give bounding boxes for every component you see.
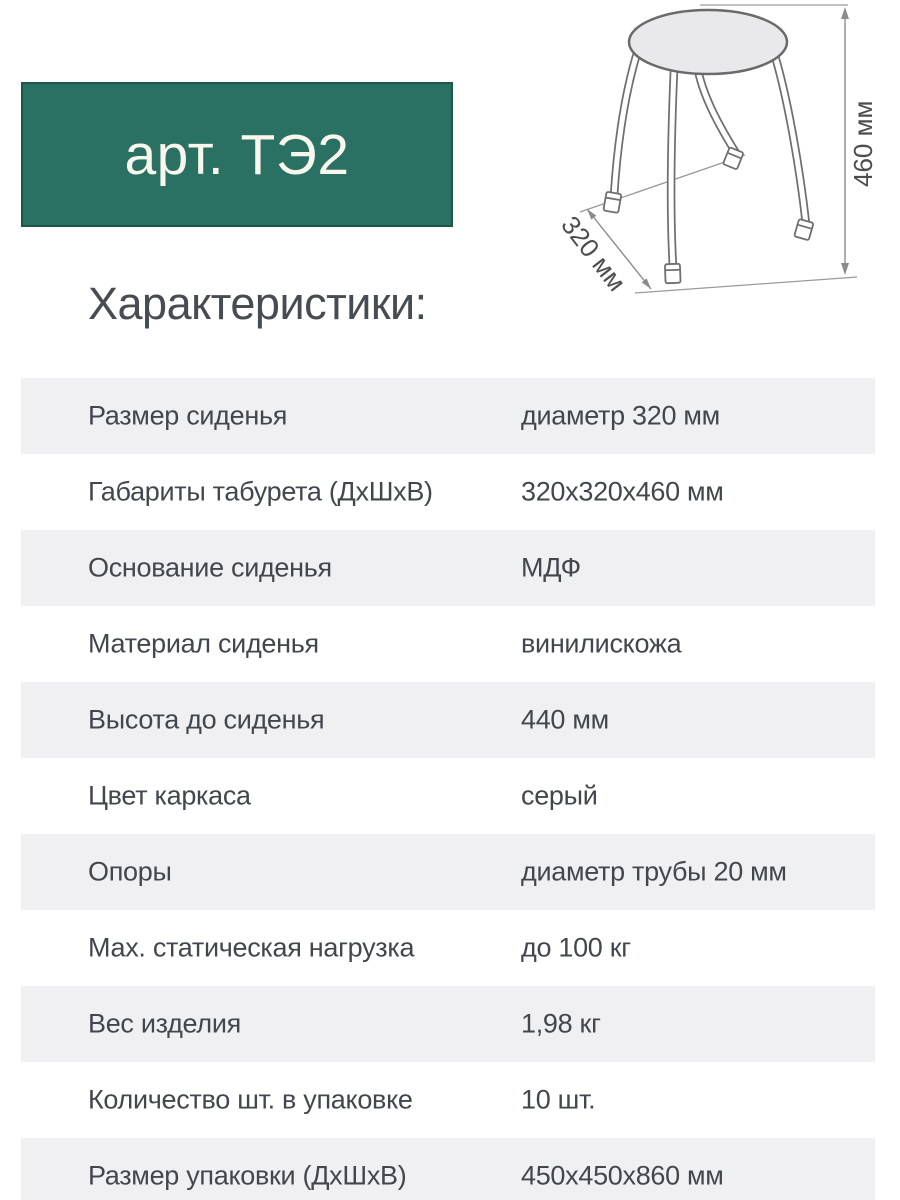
spec-label: Размер сиденья: [88, 401, 287, 432]
spec-value: диаметр 320 мм: [521, 401, 720, 432]
spec-value: МДФ: [521, 553, 581, 584]
spec-label: Основание сиденья: [88, 553, 332, 584]
spec-label: Мах. статическая нагрузка: [88, 933, 414, 964]
spec-label: Габариты табурета (ДхШхВ): [88, 477, 433, 508]
spec-value: 1,98 кг: [521, 1009, 601, 1040]
table-row: Цвет каркаса серый: [21, 758, 875, 834]
table-row: Материал сиденья винилискожа: [21, 606, 875, 682]
table-row: Габариты табурета (ДхШхВ) 320x320x460 мм: [21, 454, 875, 530]
article-badge: арт. ТЭ2: [21, 82, 453, 227]
table-row: Опоры диаметр трубы 20 мм: [21, 834, 875, 910]
spec-value: 440 мм: [521, 705, 609, 736]
spec-value: винилискожа: [521, 629, 681, 660]
spec-table: Размер сиденья диаметр 320 мм Габариты т…: [0, 378, 900, 1200]
spec-value: до 100 кг: [521, 933, 631, 964]
spec-label: Высота до сиденья: [88, 705, 324, 736]
spec-value: диаметр трубы 20 мм: [521, 857, 787, 888]
product-spec-sheet: арт. ТЭ2 Характеристики:: [0, 0, 900, 1200]
table-row: Высота до сиденья 440 мм: [21, 682, 875, 758]
spec-value: 10 шт.: [521, 1085, 595, 1116]
stool-diagram: 460 мм 320 мм: [540, 0, 900, 335]
table-row: Размер сиденья диаметр 320 мм: [21, 378, 875, 454]
arrow-up-icon: [841, 7, 849, 19]
table-row: Мах. статическая нагрузка до 100 кг: [21, 910, 875, 986]
table-row: Размер упаковки (ДхШхВ) 450x450x860 мм: [21, 1138, 875, 1200]
stool-legs: [614, 50, 806, 267]
spec-label: Количество шт. в упаковке: [88, 1085, 413, 1116]
table-row: Количество шт. в упаковке 10 шт.: [21, 1062, 875, 1138]
spec-value: 450x450x860 мм: [521, 1161, 724, 1192]
depth-dimension-label: 320 мм: [555, 210, 632, 297]
spec-label: Размер упаковки (ДхШхВ): [88, 1161, 406, 1192]
spec-value: 320x320x460 мм: [521, 477, 724, 508]
spec-label: Опоры: [88, 857, 172, 888]
article-number: арт. ТЭ2: [124, 122, 349, 188]
spec-label: Цвет каркаса: [88, 781, 251, 812]
height-dimension-label: 460 мм: [848, 101, 878, 187]
spec-label: Материал сиденья: [88, 629, 319, 660]
spec-value: серый: [521, 781, 598, 812]
page-title: Характеристики:: [88, 278, 427, 330]
table-row: Основание сиденья МДФ: [21, 530, 875, 606]
table-row: Вес изделия 1,98 кг: [21, 986, 875, 1062]
spec-label: Вес изделия: [88, 1009, 241, 1040]
arrow-down-icon: [841, 263, 849, 275]
stool-seat: [629, 10, 787, 74]
